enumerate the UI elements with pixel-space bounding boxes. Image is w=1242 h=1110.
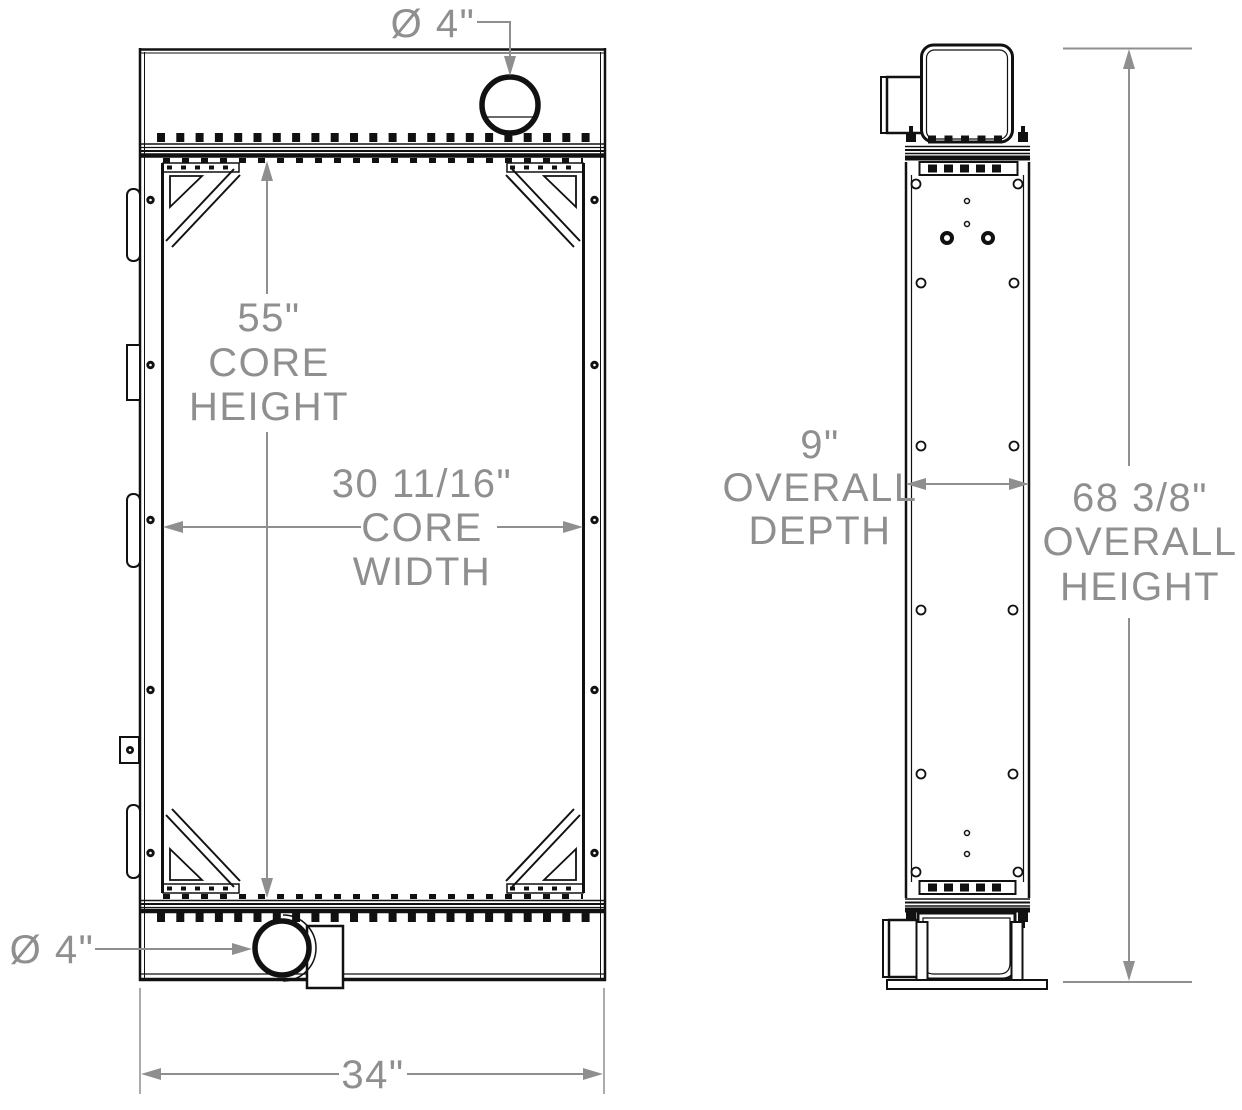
side-top-tank: [881, 45, 1013, 142]
core-height-word2: HEIGHT: [189, 385, 349, 429]
mounting-tab: [127, 189, 140, 261]
radiator-drawing: Ø 4" Ø 4" 55" CORE HEIGHT 30 11/16" CORE…: [0, 0, 1242, 1110]
overall-width-value: 34": [341, 1053, 404, 1097]
front-bottom-flange: [139, 897, 606, 918]
overall-height-word2: HEIGHT: [1060, 565, 1220, 609]
side-bottom-tank: [883, 913, 1047, 989]
bottom-stub-pipe: [889, 920, 918, 977]
core-height-value: 55": [237, 296, 300, 340]
core-width-word1: CORE: [361, 506, 483, 550]
core-width-value: 30 11/16": [332, 462, 512, 506]
overall-height-value: 68 3/8": [1072, 476, 1208, 520]
dim-overall-width: 34": [140, 988, 604, 1097]
mounting-tab: [127, 494, 140, 567]
side-view: [881, 45, 1047, 989]
side-frame: [906, 162, 1029, 898]
gusset-bottom-left: [163, 809, 240, 893]
front-mounting-tabs: [120, 189, 140, 878]
arrowhead: [1009, 478, 1029, 490]
arrowhead: [1123, 961, 1135, 981]
dim-overall-depth: 9" OVERALL DEPTH: [722, 423, 1029, 553]
front-top-port: [482, 77, 538, 133]
arrowhead: [583, 1068, 603, 1080]
port-bracket: [307, 926, 343, 988]
bottom-port-label: Ø 4": [10, 928, 95, 972]
gusset-bottom-right: [506, 809, 583, 893]
top-port-opening: [482, 77, 538, 133]
mounting-leg: [1012, 922, 1023, 980]
overall-depth-word2: DEPTH: [748, 509, 891, 553]
arrowhead: [232, 943, 252, 955]
core-height-word1: CORE: [208, 341, 330, 385]
top-stub-pipe: [887, 77, 922, 133]
front-bottom-port: [255, 915, 343, 988]
top-port-label: Ø 4": [391, 2, 476, 46]
base-plate: [887, 980, 1047, 989]
dim-top-port: Ø 4": [391, 2, 516, 76]
overall-height-word1: OVERALL: [1042, 520, 1237, 564]
mounting-tab-square: [120, 737, 139, 763]
overall-depth-value: 9": [800, 423, 839, 467]
dim-core-height: 55" CORE HEIGHT: [189, 161, 349, 898]
arrowhead: [563, 521, 583, 533]
overall-depth-word1: OVERALL: [722, 466, 917, 510]
mounting-tab: [127, 805, 140, 878]
drawing-canvas: Ø 4" Ø 4" 55" CORE HEIGHT 30 11/16" CORE…: [0, 0, 1242, 1110]
dim-overall-height: 68 3/8" OVERALL HEIGHT: [1042, 49, 1237, 983]
side-hole-pattern: [912, 180, 1023, 877]
bottom-port-opening: [255, 921, 309, 975]
arrowhead: [504, 56, 516, 76]
front-top-flange: [139, 138, 606, 161]
dim-bottom-port: Ø 4": [10, 928, 252, 972]
dim-core-width: 30 11/16" CORE WIDTH: [163, 462, 583, 594]
mounting-leg: [917, 922, 928, 980]
mounting-tab: [127, 345, 140, 400]
core-width-word2: WIDTH: [353, 550, 492, 594]
gusset-top-right: [506, 163, 583, 247]
gusset-top-left: [163, 163, 240, 247]
